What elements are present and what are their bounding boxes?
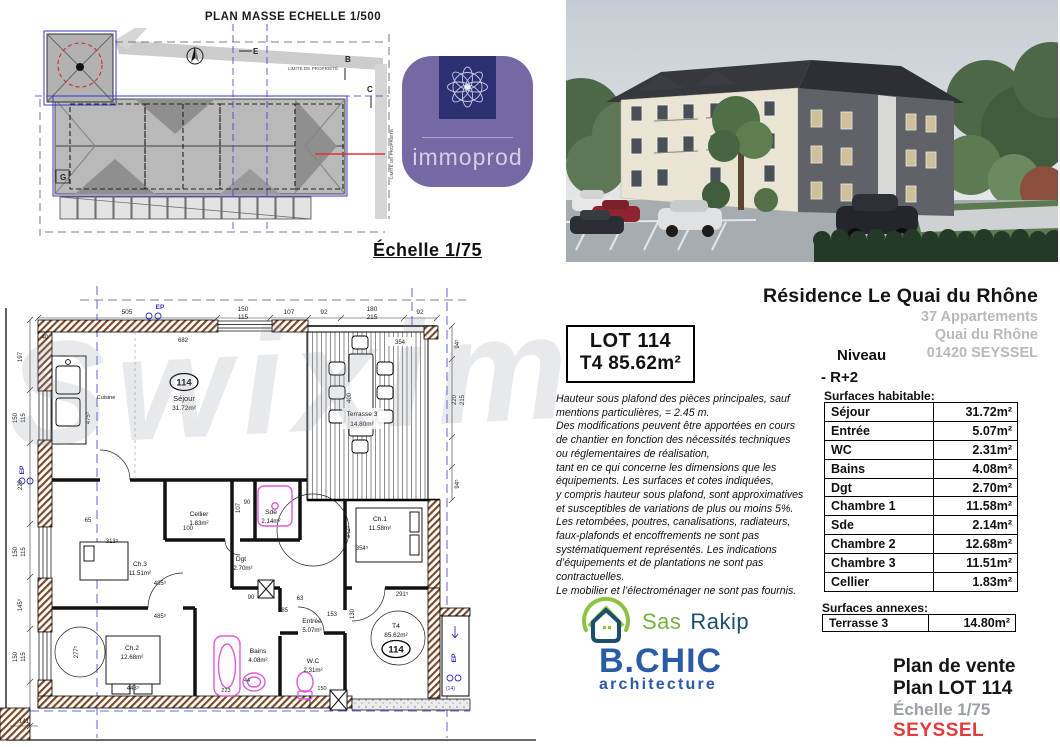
svg-text:505: 505	[122, 309, 133, 316]
svg-text:Séjour: Séjour	[173, 394, 195, 403]
svg-text:150: 150	[13, 412, 19, 423]
surfaces-annexes-label: Surfaces annexes:	[822, 601, 928, 615]
disclaimer-line: faux-plafonds et encoffrements ne sont p…	[556, 530, 818, 544]
svg-text:12.68m²: 12.68m²	[121, 654, 144, 661]
table-row: Terrasse 314.80m²	[823, 615, 1016, 632]
svg-text:Dgt: Dgt	[236, 556, 246, 563]
residence-title: Résidence Le Quai du Rhône	[678, 285, 1038, 308]
svg-text:220: 220	[452, 394, 458, 405]
building-footprint	[55, 99, 345, 194]
disclaimer-line: tant en ce qui concerne les dimensions q…	[556, 462, 818, 476]
mandala-icon	[439, 56, 496, 119]
svg-text:Ch.1: Ch.1	[373, 516, 387, 523]
table-row: Chambre 111.58m²	[825, 497, 1018, 516]
surfaces-habitable-label: Surfaces habitable:	[824, 389, 935, 403]
svg-text:Cuisine: Cuisine	[97, 395, 116, 401]
gravel-strip	[352, 699, 470, 710]
table-row: Dgt2.70m²	[825, 478, 1018, 497]
table-row: Séjour31.72m²	[825, 403, 1018, 422]
room-name-cell: Entrée	[825, 421, 934, 440]
disclaimer-line: mentions particulières, = 2.45 m.	[556, 407, 818, 421]
svg-text:63: 63	[297, 596, 304, 602]
road-vertical	[375, 64, 387, 219]
table-row: Bains4.08m²	[825, 459, 1018, 478]
floorplan-scale-label: Échelle 1/75	[345, 240, 510, 261]
svg-text:94⁵: 94⁵	[454, 339, 461, 349]
tower	[44, 31, 116, 105]
sale-plan-sheet: PLAN MASSE ECHELLE 1/500	[0, 0, 1060, 747]
svg-text:4.08m²: 4.08m²	[248, 657, 267, 664]
svg-text:223: 223	[221, 688, 230, 694]
svg-text:C: C	[367, 85, 373, 94]
svg-text:11.58m²: 11.58m²	[369, 525, 391, 532]
svg-text:E: E	[253, 47, 259, 56]
svg-text:150: 150	[13, 651, 19, 662]
svg-text:197: 197	[18, 351, 24, 362]
svg-text:291⁵: 291⁵	[396, 591, 409, 598]
svg-text:EP: EP	[451, 653, 458, 662]
svg-text:EP: EP	[19, 465, 26, 474]
svg-text:Ch.2: Ch.2	[125, 645, 139, 652]
dims-top: 505 150 115 107 92 180 215 92	[122, 306, 424, 321]
svg-text:44: 44	[244, 678, 250, 684]
svg-text:2.31m²: 2.31m²	[303, 667, 322, 674]
svg-text:285: 285	[278, 608, 289, 614]
svg-text:150: 150	[317, 686, 326, 692]
room-name-cell: Chambre 3	[825, 554, 934, 573]
lot-type-surface: T4 85.62m²	[568, 353, 693, 375]
room-name-cell: Dgt	[825, 478, 934, 497]
legal-disclaimer: Hauteur sous plafond des pièces principa…	[556, 393, 818, 599]
room-area-cell: 2.70m²	[934, 478, 1018, 497]
niveau-label: Niveau	[837, 347, 886, 364]
disclaimer-line: Des modifications peuvent être apportées…	[556, 420, 818, 434]
svg-text:342⁵: 342⁵	[345, 525, 352, 538]
svg-text:475⁵: 475⁵	[85, 411, 92, 424]
dims-left: 197 150 115 229 150 115 145⁵ 150 115 141	[13, 351, 30, 725]
svg-text:65: 65	[85, 518, 92, 524]
dims-right: 94⁵ 220 215 94⁵	[452, 339, 466, 489]
table-row: Chambre 212.68m²	[825, 535, 1018, 554]
rakip-house-icon	[580, 596, 632, 648]
svg-text:180: 180	[367, 306, 378, 313]
limite-label-vertical: LIMITE DE PROPRIÉTÉ	[388, 129, 394, 179]
svg-text:W.C: W.C	[307, 658, 320, 665]
svg-text:2.70m²: 2.70m²	[233, 565, 252, 572]
residence-street: Quai du Rhône	[678, 326, 1038, 344]
svg-text:130: 130	[350, 608, 356, 619]
bchic-wordmark: B.CHIC	[599, 644, 722, 678]
sale-title-block: Plan de vente Plan LOT 114 Échelle 1/75 …	[893, 656, 1016, 742]
limite-label: LIMITE DE PROPRIÉTÉ	[288, 65, 338, 71]
room-area-cell: 1.83m²	[934, 573, 1018, 592]
svg-text:115: 115	[21, 652, 27, 662]
residence-apartments: 37 Appartements	[678, 308, 1038, 326]
svg-text:150: 150	[13, 546, 19, 557]
room-name-cell: Cellier	[825, 573, 934, 592]
room-name-cell: Bains	[825, 459, 934, 478]
svg-text:Bains: Bains	[250, 648, 267, 655]
table-row: WC2.31m²	[825, 440, 1018, 459]
sale-city: SEYSSEL	[893, 720, 1016, 742]
svg-text:682: 682	[178, 338, 189, 344]
room-area-cell: 5.07m²	[934, 421, 1018, 440]
svg-text:G: G	[60, 173, 66, 182]
disclaimer-line: systématiquement représentés. Les indica…	[556, 544, 818, 558]
svg-text:92: 92	[320, 309, 328, 316]
table-row: Entrée5.07m²	[825, 421, 1018, 440]
immoprod-emblem	[439, 56, 496, 119]
svg-text:107: 107	[284, 309, 295, 316]
svg-text:141: 141	[19, 719, 30, 725]
svg-text:115: 115	[238, 314, 249, 321]
immoprod-logo: immoprod	[402, 56, 533, 187]
svg-text:Cellier: Cellier	[190, 511, 209, 518]
svg-text:150: 150	[238, 306, 249, 313]
bchic-subtitle: architecture	[599, 676, 722, 694]
disclaimer-line: de chantier en fonction des nécessités t…	[556, 434, 818, 448]
disclaimer-line: y compris hauteur sous plafond, sont app…	[556, 489, 818, 503]
table-row: Sde2.14m²	[825, 516, 1018, 535]
sale-line-1: Plan de vente	[893, 656, 1016, 678]
svg-text:Sde: Sde	[265, 509, 277, 516]
sas-rakip-logo: SasRakip	[580, 596, 749, 648]
surfaces-habitable-table: Séjour31.72m² Entrée5.07m² WC2.31m² Bain…	[824, 402, 1018, 592]
disclaimer-line: d’équipements et de plantations ne sont …	[556, 557, 818, 584]
svg-text:Entrée: Entrée	[302, 618, 322, 625]
svg-text:92: 92	[416, 309, 424, 316]
disclaimer-line: équipements. Les surfaces et cotes indiq…	[556, 475, 818, 489]
bchic-logo: B.CHIC architecture	[599, 644, 722, 694]
svg-text:2.14m²: 2.14m²	[261, 518, 280, 525]
unit-badge-2: 114	[388, 645, 404, 656]
disclaimer-line: Hauteur sous plafond des pièces principa…	[556, 393, 818, 407]
parking-row	[60, 197, 311, 219]
svg-text:40: 40	[42, 335, 49, 341]
site-plan-title: PLAN MASSE ECHELLE 1/500	[205, 11, 381, 23]
annex-area-cell: 14.80m²	[928, 615, 1015, 632]
room-area-cell: 2.31m²	[934, 440, 1018, 459]
room-area-cell: 11.51m²	[934, 554, 1018, 573]
svg-text:11.51m²: 11.51m²	[129, 570, 151, 577]
svg-text:Terrasse 3: Terrasse 3	[347, 411, 378, 418]
table-row: Chambre 311.51m²	[825, 554, 1018, 573]
svg-text:Ch.3: Ch.3	[133, 561, 147, 568]
room-area-cell: 2.14m²	[934, 516, 1018, 535]
sale-line-2: Plan LOT 114	[893, 678, 1016, 700]
surfaces-annexes-table: Terrasse 314.80m²	[822, 614, 1016, 632]
svg-text:B: B	[345, 55, 351, 64]
svg-text:277⁵: 277⁵	[73, 645, 80, 658]
svg-text:5.07m²: 5.07m²	[302, 627, 321, 634]
svg-text:313⁵: 313⁵	[106, 538, 119, 545]
svg-text:215: 215	[460, 394, 466, 405]
building	[606, 60, 964, 216]
svg-text:400: 400	[347, 392, 353, 403]
disclaimer-line: ou réglementaires de réalisation,	[556, 448, 818, 462]
svg-text:EP: EP	[156, 304, 165, 311]
room-name-cell: Séjour	[825, 403, 934, 422]
room-name-cell: Sde	[825, 516, 934, 535]
annex-name-cell: Terrasse 3	[823, 615, 929, 632]
lot-number: LOT 114	[568, 330, 693, 353]
svg-text:215: 215	[367, 314, 378, 321]
svg-text:153: 153	[327, 612, 338, 618]
room-area-cell: 4.08m²	[934, 459, 1018, 478]
svg-text:100: 100	[183, 526, 194, 532]
svg-text:107: 107	[236, 502, 242, 513]
disclaimer-line: Les retombées, poutres, canalisations, r…	[556, 516, 818, 530]
disclaimer-line: et susceptibles de variations de plus ou…	[556, 503, 818, 517]
unit-badge: 114	[176, 378, 192, 389]
svg-text:443⁵: 443⁵	[127, 685, 140, 692]
ep-note: (14)	[446, 686, 455, 692]
room-area-cell: 31.72m²	[934, 403, 1018, 422]
rakip-name: Rakip	[690, 609, 749, 634]
lot-info-box: LOT 114 T4 85.62m²	[566, 325, 695, 383]
rakip-sas: Sas	[642, 609, 681, 634]
svg-text:145⁵: 145⁵	[17, 598, 24, 611]
floorplan-drawing: 114 Séjour 31.72m² Cuisine Terrasse 3 14…	[0, 278, 540, 747]
niveau-value: - R+2	[821, 369, 858, 386]
svg-text:31.72m²: 31.72m²	[172, 405, 197, 412]
room-area-cell: 11.58m²	[934, 497, 1018, 516]
logo-divider	[422, 137, 513, 138]
svg-text:85.62m²: 85.62m²	[384, 632, 407, 639]
svg-text:94⁵: 94⁵	[454, 479, 461, 489]
room-area-cell: 12.68m²	[934, 535, 1018, 554]
svg-text:T4: T4	[392, 623, 400, 630]
room-name-cell: Chambre 2	[825, 535, 934, 554]
svg-text:485⁵: 485⁵	[154, 580, 167, 587]
road	[115, 40, 383, 70]
site-plan-masse: PLAN MASSE ECHELLE 1/500	[15, 4, 397, 244]
svg-text:115: 115	[21, 547, 27, 557]
room-name-cell: Chambre 1	[825, 497, 934, 516]
table-row: Cellier1.83m²	[825, 573, 1018, 592]
svg-text:354⁵: 354⁵	[356, 545, 369, 552]
building-render-photo	[566, 0, 1058, 262]
room-name-cell: WC	[825, 440, 934, 459]
svg-text:485⁵: 485⁵	[154, 613, 167, 620]
svg-text:90: 90	[248, 595, 255, 601]
svg-text:354: 354	[395, 340, 406, 346]
svg-text:115: 115	[21, 413, 27, 423]
svg-text:90: 90	[244, 500, 251, 506]
immoprod-wordmark: immoprod	[402, 144, 533, 171]
sale-scale: Échelle 1/75	[893, 700, 1016, 720]
rakip-wordmark: SasRakip	[642, 609, 749, 635]
svg-text:14.80m²: 14.80m²	[350, 421, 373, 428]
